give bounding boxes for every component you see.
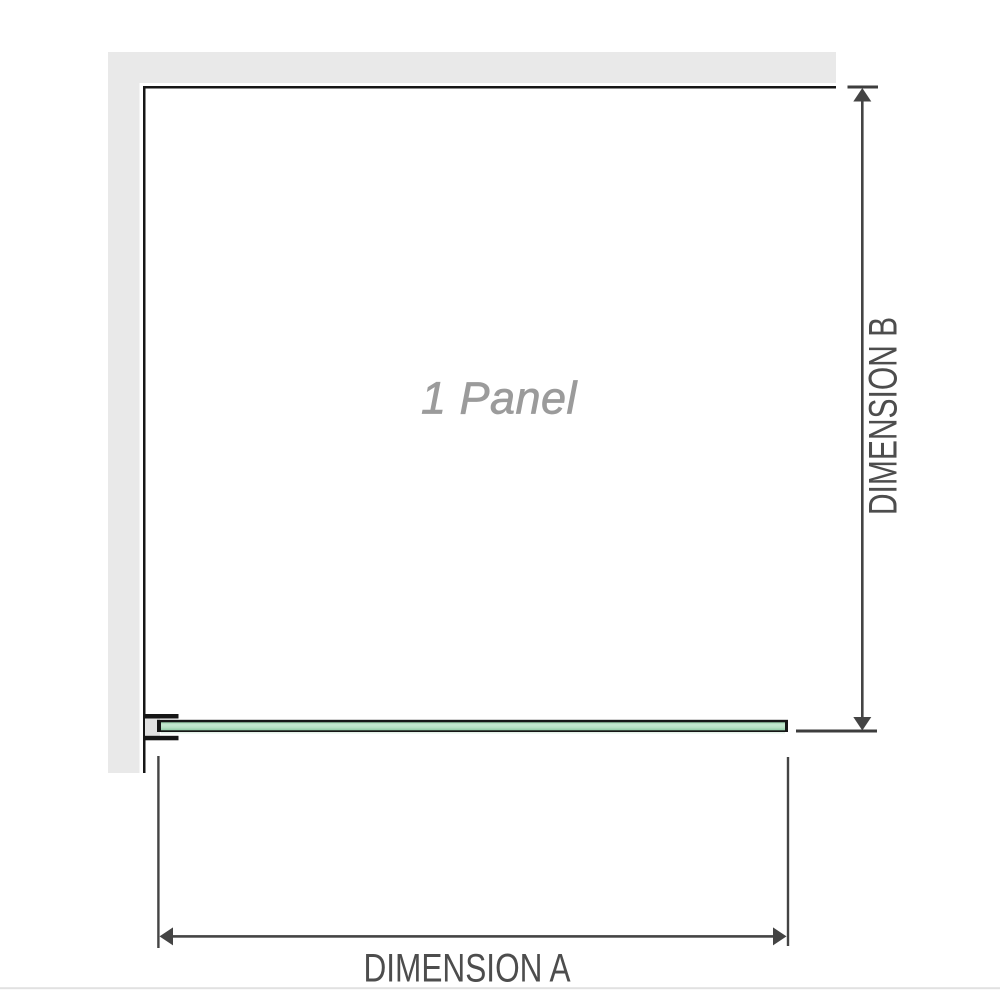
svg-text:DIMENSION A: DIMENSION A	[363, 945, 570, 990]
svg-text:1 Panel: 1 Panel	[421, 373, 579, 424]
svg-text:DIMENSION B: DIMENSION B	[861, 317, 905, 515]
